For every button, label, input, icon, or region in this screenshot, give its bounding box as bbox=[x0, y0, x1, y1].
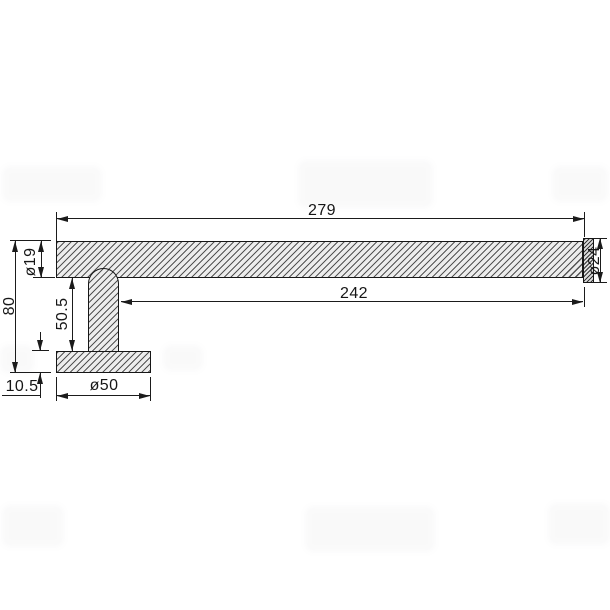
extension-line bbox=[584, 212, 585, 237]
watermark bbox=[548, 503, 610, 545]
dim-overall-length-label: 279 bbox=[302, 203, 342, 219]
watermark bbox=[552, 166, 608, 202]
watermark bbox=[2, 505, 64, 547]
dim-post-height-label: 50.5 bbox=[55, 292, 71, 336]
dim-total-height-label: 80 bbox=[2, 291, 18, 321]
dim-arrow bbox=[573, 216, 584, 222]
dim-arrow bbox=[139, 393, 150, 399]
dim-base-diameter-label: ø50 bbox=[84, 378, 124, 394]
dim-arrow bbox=[12, 241, 18, 252]
dim-arrow bbox=[12, 362, 18, 373]
extension-line bbox=[584, 287, 585, 307]
dim-arrow bbox=[57, 216, 68, 222]
dim-arrow bbox=[69, 340, 75, 351]
watermark bbox=[163, 345, 203, 371]
technical-drawing-canvas: 279 242 ø19 80 50.5 10.5 ø50 ø24 bbox=[0, 0, 610, 610]
dim-arrow bbox=[69, 278, 75, 289]
rail-bar bbox=[56, 241, 583, 278]
dim-arrow bbox=[572, 299, 583, 305]
mounting-post bbox=[88, 268, 119, 352]
dim-arrow bbox=[121, 299, 132, 305]
base-plate bbox=[56, 351, 151, 373]
dimension-line-d50 bbox=[57, 395, 150, 396]
watermark bbox=[298, 160, 433, 208]
dim-bar-diameter-label: ø19 bbox=[23, 244, 39, 280]
watermark bbox=[2, 166, 102, 202]
watermark bbox=[305, 506, 435, 552]
dim-cap-diameter-label: ø24 bbox=[587, 242, 603, 280]
dim-bar-length-label: 242 bbox=[334, 286, 374, 302]
dim-underline bbox=[2, 395, 41, 396]
extension-line bbox=[150, 377, 151, 401]
dim-base-thickness-label: 10.5 bbox=[2, 379, 42, 395]
dim-arrow bbox=[37, 340, 43, 351]
dim-arrow bbox=[57, 393, 68, 399]
